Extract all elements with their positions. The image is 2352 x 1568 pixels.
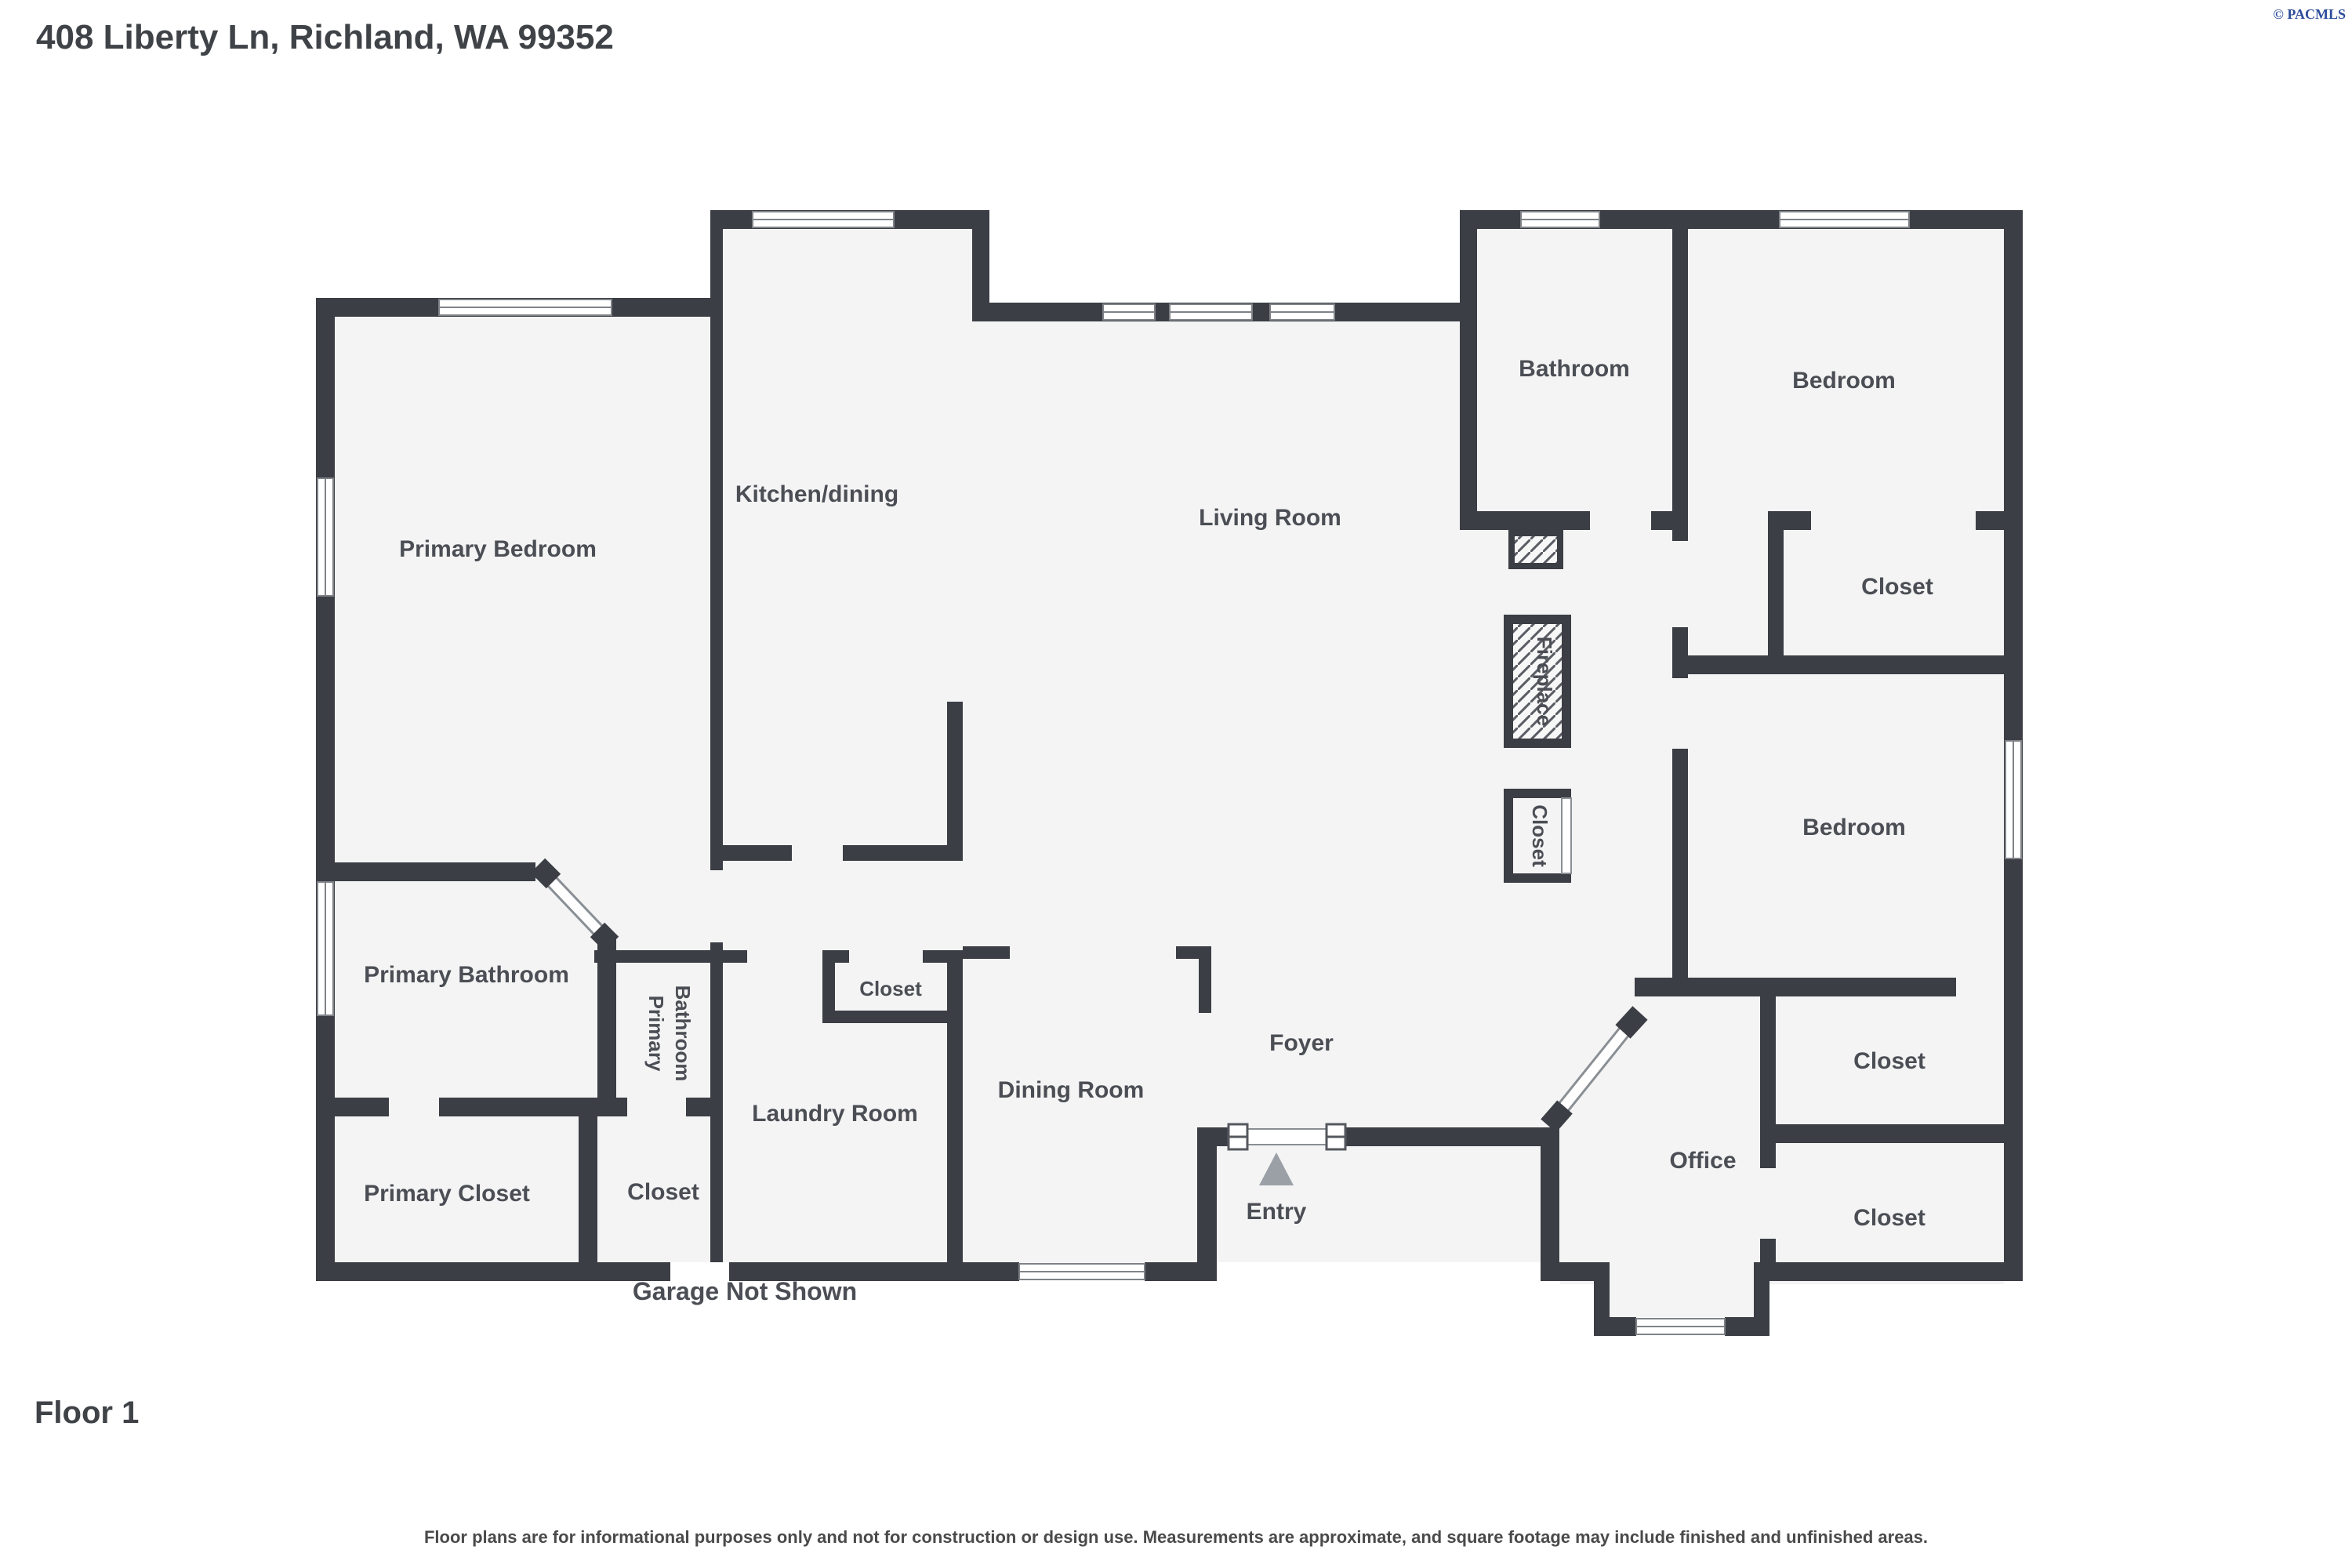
wall-pcloset-east: [579, 1116, 597, 1262]
wall-bottom-1: [316, 1262, 670, 1281]
wall-closet-ne-top-2: [1976, 511, 2023, 530]
wall-kitchen-stub-a: [723, 845, 792, 861]
gapfill-suite-door: [710, 870, 723, 942]
wall-bathroom-south-2: [1651, 511, 1672, 530]
wall-kitchen-dining-divider: [947, 702, 963, 861]
label-closet-office-n: Closet: [1853, 1048, 1926, 1074]
floor-label: Floor 1: [34, 1396, 139, 1430]
label-hall-closet-vertical: Closet: [1528, 804, 1552, 867]
wall-bedbath-divider: [316, 862, 535, 881]
wall-dining-west: [947, 950, 963, 1262]
hall-closet-door: [1562, 798, 1571, 873]
entry-door-opening: [1247, 1129, 1327, 1145]
label-closet-ne: Closet: [1861, 574, 1933, 600]
wall-pcloset-north-2: [439, 1098, 627, 1116]
wall-kitchen-west-upper: [710, 210, 723, 870]
floor-plan-page: 408 Liberty Ln, Richland, WA 99352 © PAC…: [0, 0, 2352, 1568]
wall-office-bottom-2: [1769, 1262, 2004, 1281]
wall-bedroom-e-bottom: [1688, 978, 1956, 996]
wall-entry-west: [1197, 1127, 1217, 1281]
label-kitchen-dining: Kitchen/dining: [735, 481, 898, 507]
wall-bottom-3: [1145, 1262, 1217, 1281]
label-dining-room: Dining Room: [998, 1077, 1145, 1103]
label-office: Office: [1669, 1148, 1736, 1174]
label-primary-closet: Primary Closet: [364, 1181, 530, 1207]
label-laundry-room: Laundry Room: [752, 1101, 918, 1127]
floor-plan-canvas: 408 Liberty Ln, Richland, WA 99352 © PAC…: [0, 0, 2352, 1568]
wall-closetA-south: [822, 1011, 963, 1023]
wall-office-north-stub: [1635, 978, 1688, 996]
diagonal-cap-office-bottom: [1548, 1107, 1565, 1126]
wall-laundry-north-1: [723, 950, 747, 963]
wall-bedroom-e-top: [1688, 655, 2023, 674]
label-closet-center: Closet: [627, 1179, 699, 1205]
room-fill-bedroom-ne: [1688, 229, 2004, 655]
wall-hall-east-1: [1672, 210, 1688, 541]
wall-closet-s-west-1: [1760, 1143, 1776, 1168]
label-bedroom-e: Bedroom: [1802, 815, 1906, 840]
label-garage-note: Garage Not Shown: [633, 1277, 857, 1305]
room-fill-primary-suite: [335, 317, 710, 1262]
label-bedroom-ne: Bedroom: [1792, 368, 1896, 394]
wall-closet-ne-west: [1768, 511, 1784, 655]
wall-closet-divider-v: [1760, 996, 1776, 1124]
label-foyer: Foyer: [1269, 1030, 1334, 1056]
wall-west-outer: [316, 298, 335, 1281]
wall-hall-east-3: [1672, 749, 1688, 993]
wall-kitchen-stub-b: [843, 845, 963, 861]
wall-entry-2: [1345, 1127, 1559, 1146]
room-fill-office-bump: [1610, 1262, 1754, 1317]
wall-hall-east-2: [1672, 627, 1688, 678]
label-primary-bathroom: Primary Bathroom: [364, 962, 569, 988]
label-ps-hall-line1: Primary: [644, 996, 668, 1072]
label-bathroom: Bathroom: [1519, 356, 1630, 382]
label-ps-hall-line2: Bathroom: [671, 985, 695, 1082]
page-title: 408 Liberty Ln, Richland, WA 99352: [36, 18, 614, 56]
label-living-room: Living Room: [1199, 505, 1341, 531]
copyright-label: © PACMLS: [2273, 6, 2346, 22]
wall-bump-bottom-2: [1725, 1317, 1769, 1336]
wall-bathroom-west: [1460, 210, 1477, 530]
wall-closet-divider-h: [1760, 1124, 2004, 1143]
label-entry: Entry: [1247, 1199, 1307, 1225]
diagonal-cap-pb-bottom: [597, 930, 612, 944]
wall-kitchen-west-lower: [710, 942, 723, 1116]
wall-pcloset-north-1: [316, 1098, 389, 1116]
wall-bathroom-south-1: [1460, 511, 1590, 530]
gapfill-bath-door: [1590, 506, 1651, 530]
label-fireplace-vertical: Fireplace: [1533, 637, 1556, 726]
wall-dining-stub: [963, 946, 1010, 959]
diagonal-cap-office-top: [1623, 1013, 1640, 1032]
diagonal-cap-pb-top: [538, 866, 554, 881]
wall-hall-ps-north: [594, 950, 723, 963]
floor-plan: Primary Bedroom Kitchen/dining Living Ro…: [316, 210, 2023, 1336]
label-closet-office-s: Closet: [1853, 1205, 1926, 1231]
label-closet-kitchen: Closet: [859, 977, 922, 1000]
disclaimer-text: Floor plans are for informational purpos…: [424, 1527, 1928, 1547]
wall-office-west: [1541, 1127, 1559, 1281]
wall-bump-bottom-1: [1594, 1317, 1636, 1336]
wall-pcloset-north-3: [686, 1098, 723, 1116]
wall-hall-ps-west: [597, 938, 616, 1116]
chimney-hatch: [1512, 533, 1560, 566]
label-primary-bedroom: Primary Bedroom: [399, 536, 597, 562]
room-fill-fireplace-column: [1501, 525, 1595, 978]
wall-laundry-west: [710, 1116, 723, 1262]
wall-foyer-stub-v: [1199, 946, 1211, 1013]
wall-laundry-north-3: [923, 950, 963, 963]
